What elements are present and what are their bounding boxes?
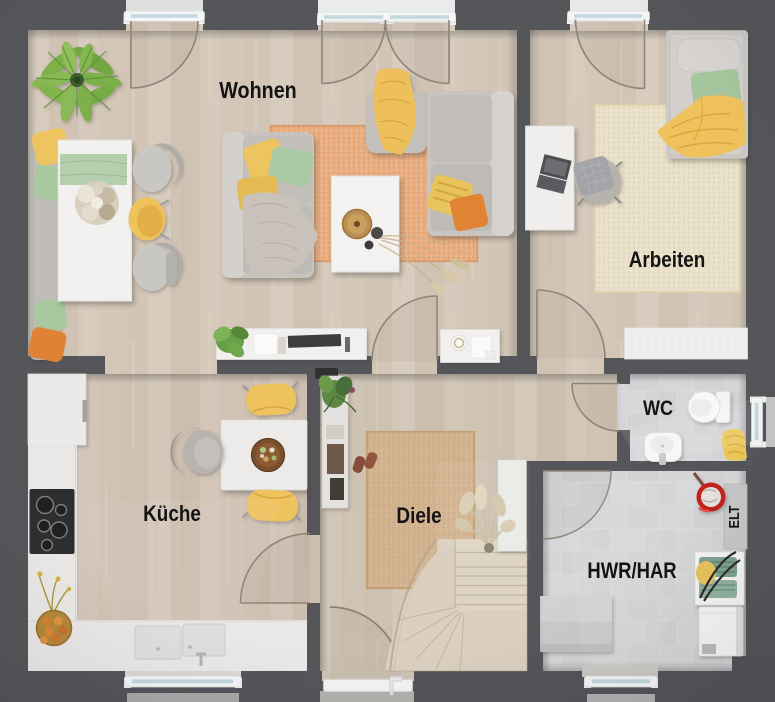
svg-text:HWR/HAR: HWR/HAR: [587, 560, 677, 584]
svg-text:ELT: ELT: [726, 505, 742, 529]
svg-text:Wohnen: Wohnen: [219, 76, 296, 103]
svg-text:Arbeiten: Arbeiten: [629, 248, 706, 273]
svg-text:WC: WC: [643, 397, 673, 421]
svg-text:Diele: Diele: [396, 504, 441, 529]
svg-text:Küche: Küche: [143, 502, 201, 527]
